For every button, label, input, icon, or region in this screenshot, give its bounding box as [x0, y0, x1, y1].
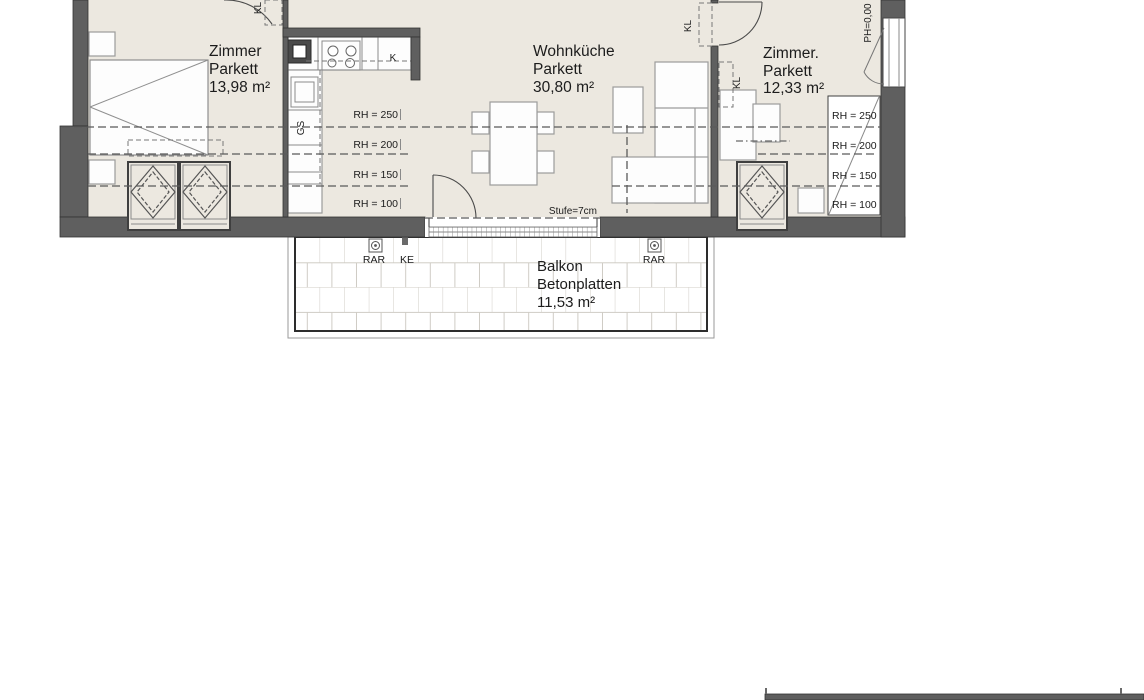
- room-floor-type: Parkett: [763, 63, 813, 80]
- roof-window: [180, 162, 230, 230]
- sink-icon: [288, 40, 311, 63]
- closet-top-label: KL: [253, 1, 264, 14]
- wall-kitchen-return: [411, 37, 420, 80]
- rh-label: RH = 100: [353, 198, 398, 210]
- threshold-hatch: [429, 227, 597, 237]
- bed-symbol: [90, 60, 208, 155]
- drain-right-icon: [648, 239, 661, 252]
- window-frame: [883, 18, 905, 87]
- side-table-symbol: [798, 188, 824, 213]
- downpipe-icon: [402, 237, 408, 245]
- rh-label: RH = 150: [353, 169, 398, 181]
- room-name: Zimmer: [209, 43, 262, 60]
- balcony-concrete-tiles: [296, 238, 706, 330]
- roof-window: [737, 162, 787, 230]
- adjacent-plan-edge: [765, 694, 1144, 700]
- balcony-name: Balkon: [537, 258, 583, 275]
- armchair-symbol: [613, 87, 643, 133]
- rh-label: RH = 150: [832, 170, 877, 182]
- chair-symbol: [472, 151, 489, 173]
- room-name: Wohnküche: [533, 43, 615, 60]
- chair-symbol: [537, 151, 554, 173]
- chair-symbol: [537, 112, 554, 134]
- closet-room-label: KL: [732, 76, 743, 89]
- wall-left-lower: [60, 126, 88, 217]
- side-table-symbol: [89, 160, 115, 184]
- drain-left-label: RAR: [363, 254, 386, 266]
- dishwasher-label: GS: [296, 120, 307, 135]
- rh-label: RH = 250: [353, 109, 398, 121]
- room-area: 30,80 m²: [533, 79, 594, 96]
- wall-interior-right: [711, 46, 718, 217]
- fridge-label: K: [390, 53, 397, 64]
- rh-label: RH = 100: [832, 199, 877, 211]
- adjacent-plan-tick: [765, 688, 767, 694]
- roof-window: [128, 162, 178, 230]
- room-area: 13,98 m²: [209, 79, 270, 96]
- rh-label: RH = 200: [832, 140, 877, 152]
- balcony-area: 11,53 m²: [537, 294, 595, 311]
- room-name: Zimmer.: [763, 45, 819, 62]
- balcony: RAR KE RAR Balkon Betonplatten 11,53 m²: [288, 237, 714, 338]
- floorplan-canvas: RAR KE RAR Balkon Betonplatten 11,53 m²: [0, 0, 1144, 700]
- nightstand-symbol: [89, 32, 115, 56]
- balcony-floor-type: Betonplatten: [537, 276, 621, 293]
- parapet-label: PH=0,00: [863, 3, 874, 43]
- wall-interior-right-stub: [711, 0, 718, 3]
- floorplan-drawing: RAR KE RAR Balkon Betonplatten 11,53 m²: [0, 0, 1144, 700]
- wall-kitchen-top: [283, 28, 420, 37]
- drain-right-label: RAR: [643, 254, 666, 266]
- wall-bottom-left: [60, 217, 425, 237]
- room-floor-type: Parkett: [209, 61, 259, 78]
- dining-table-symbol: [490, 102, 537, 185]
- room-area: 12,33 m²: [763, 80, 824, 97]
- step-label: Stufe=7cm: [549, 206, 597, 217]
- kitchen-counter-side: [288, 70, 322, 213]
- rh-label: RH = 250: [832, 110, 877, 122]
- downpipe-label: KE: [400, 254, 414, 266]
- chair-symbol: [472, 112, 489, 134]
- closet-door-label: KL: [683, 19, 694, 32]
- adjacent-plan-tick: [1120, 688, 1122, 694]
- wall-left-upper: [73, 0, 88, 126]
- rh-label: RH = 200: [353, 139, 398, 151]
- drain-left-icon: [369, 239, 382, 252]
- chair-symbol: [753, 104, 780, 142]
- desk-symbol: [720, 90, 756, 160]
- room-floor-type: Parkett: [533, 61, 583, 78]
